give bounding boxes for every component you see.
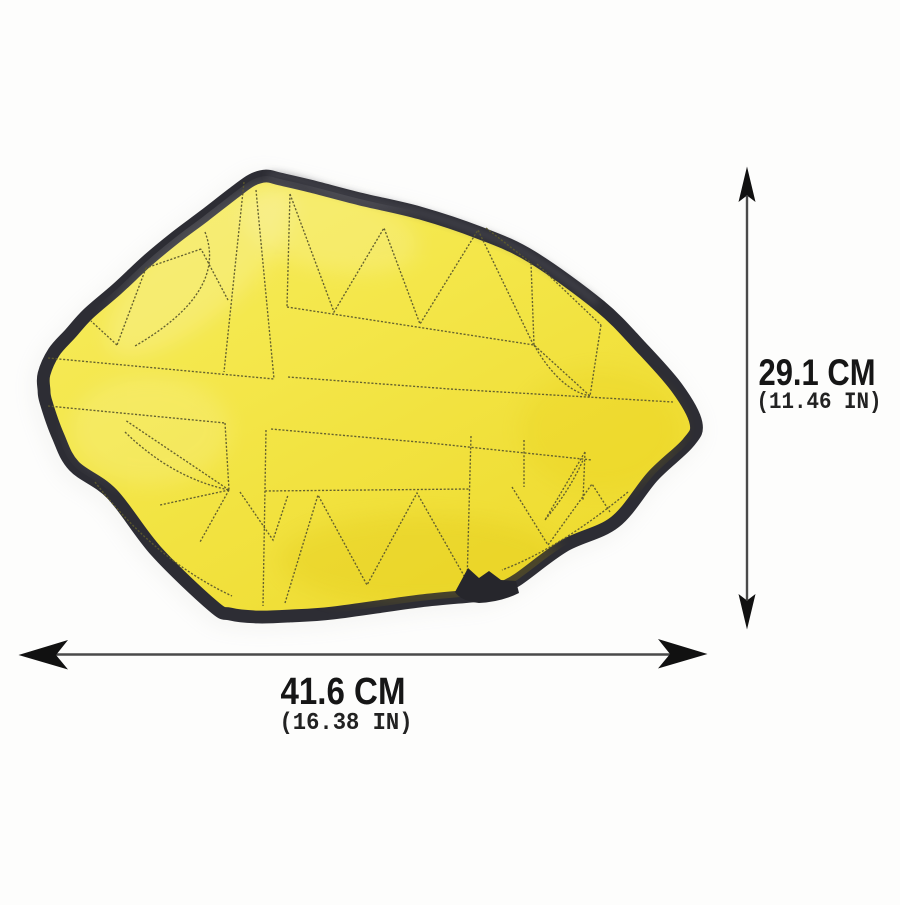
svg-text:29.1 CM: 29.1 CM — [759, 352, 876, 393]
svg-text:(11.46 IN): (11.46 IN) — [757, 389, 882, 415]
svg-text:(16.38 IN): (16.38 IN) — [280, 710, 413, 737]
svg-text:41.6 CM: 41.6 CM — [281, 671, 406, 713]
